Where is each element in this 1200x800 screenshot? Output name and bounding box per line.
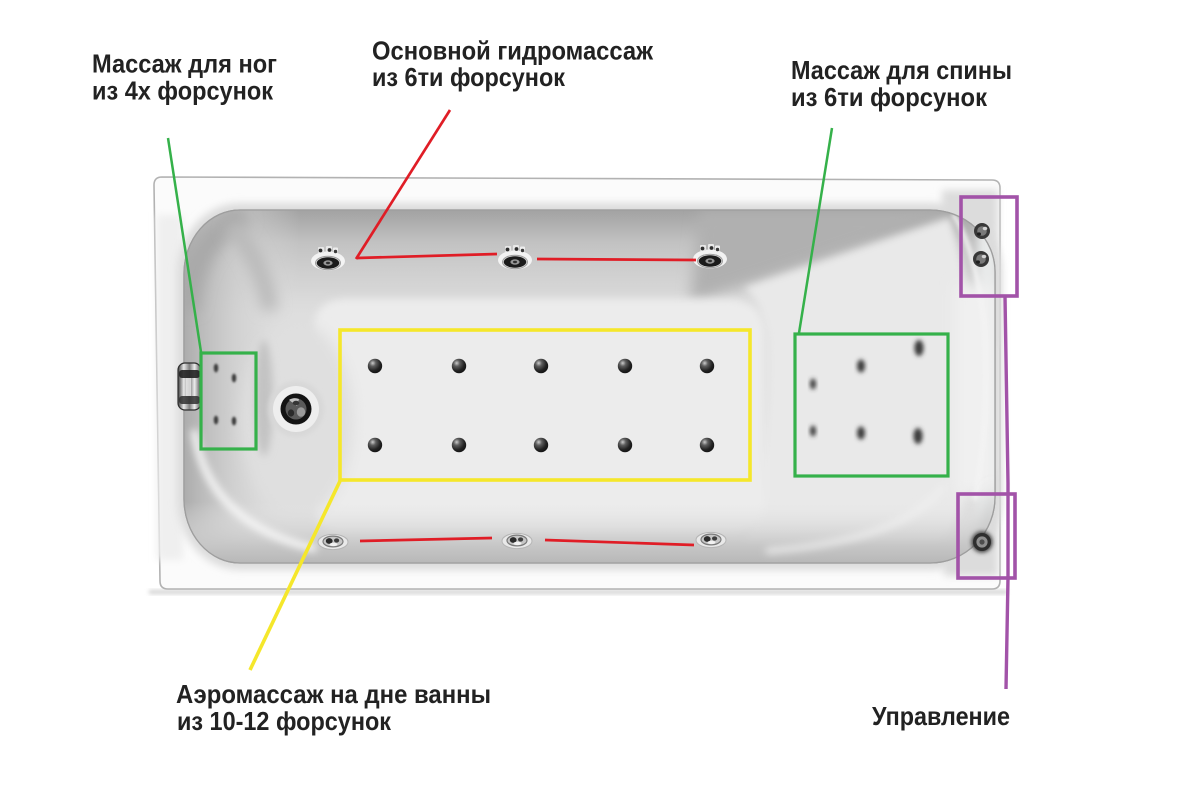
svg-text:из 6ти форсунок: из 6ти форсунок [372, 62, 566, 92]
svg-text:из 10-12 форсунок: из 10-12 форсунок [177, 706, 392, 736]
svg-text:Основной гидромассаж: Основной гидромассаж [372, 36, 654, 66]
svg-text:Аэромассаж на дне ванны: Аэромассаж на дне ванны [176, 679, 491, 709]
svg-text:из 4х форсунок: из 4х форсунок [92, 76, 274, 106]
svg-text:Массаж для спины: Массаж для спины [791, 55, 1012, 85]
svg-text:Управление: Управление [872, 701, 1010, 731]
svg-text:Массаж для ног: Массаж для ног [92, 49, 277, 79]
svg-text:из 6ти форсунок: из 6ти форсунок [791, 82, 988, 112]
